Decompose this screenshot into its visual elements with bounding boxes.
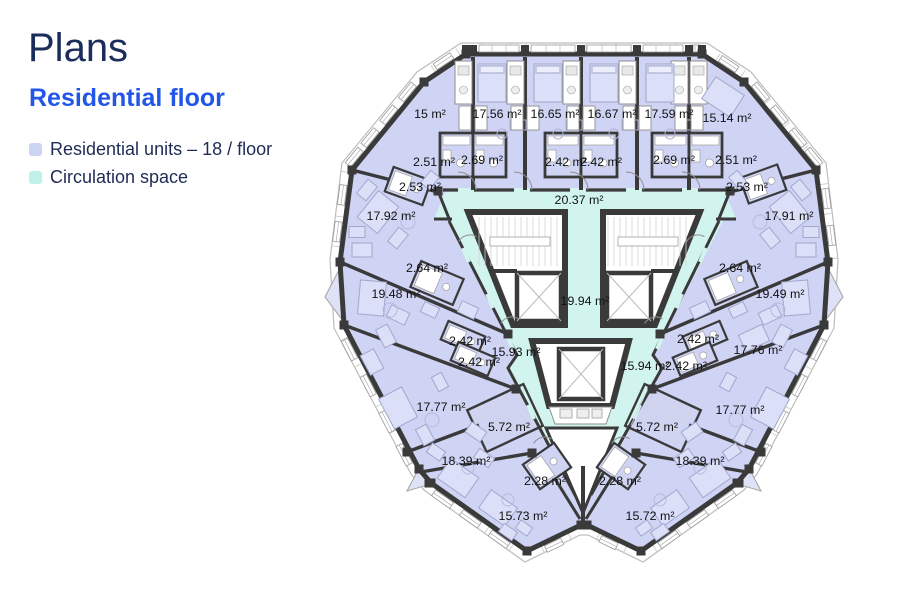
svg-text:2.51 m²: 2.51 m²: [413, 155, 455, 169]
svg-text:17.56 m²: 17.56 m²: [473, 107, 522, 121]
svg-text:19.48 m²: 19.48 m²: [372, 287, 421, 301]
svg-text:17.59 m²: 17.59 m²: [645, 107, 694, 121]
svg-text:17.91 m²: 17.91 m²: [765, 209, 814, 223]
svg-text:20.37 m²: 20.37 m²: [555, 193, 604, 207]
svg-text:18.39 m²: 18.39 m²: [676, 454, 725, 468]
svg-text:17.92 m²: 17.92 m²: [367, 209, 416, 223]
svg-text:2.42 m²: 2.42 m²: [449, 334, 491, 348]
svg-text:2.53 m²: 2.53 m²: [726, 180, 768, 194]
svg-text:15.14 m²: 15.14 m²: [703, 111, 752, 125]
svg-text:15 m²: 15 m²: [414, 107, 446, 121]
svg-text:2.69 m²: 2.69 m²: [461, 153, 503, 167]
svg-text:2.64 m²: 2.64 m²: [406, 261, 448, 275]
svg-text:2.53 m²: 2.53 m²: [399, 180, 441, 194]
svg-text:2.28 m²: 2.28 m²: [524, 474, 566, 488]
svg-text:17.76 m²: 17.76 m²: [734, 343, 783, 357]
svg-text:17.77 m²: 17.77 m²: [716, 403, 765, 417]
svg-text:15.72 m²: 15.72 m²: [626, 509, 675, 523]
svg-text:19.49 m²: 19.49 m²: [756, 287, 805, 301]
svg-text:2.42 m²: 2.42 m²: [458, 355, 500, 369]
svg-text:2.51 m²: 2.51 m²: [715, 153, 757, 167]
svg-text:17.77 m²: 17.77 m²: [417, 400, 466, 414]
svg-text:19.94 m²: 19.94 m²: [561, 294, 610, 308]
svg-text:2.69 m²: 2.69 m²: [653, 153, 695, 167]
svg-text:2.42 m²: 2.42 m²: [665, 359, 707, 373]
svg-text:15.73 m²: 15.73 m²: [499, 509, 548, 523]
svg-text:5.72 m²: 5.72 m²: [636, 420, 678, 434]
svg-text:2.42 m²: 2.42 m²: [580, 155, 622, 169]
svg-text:2.28 m²: 2.28 m²: [599, 474, 641, 488]
svg-text:2.42 m²: 2.42 m²: [677, 332, 719, 346]
svg-text:15.94 m²: 15.94 m²: [621, 359, 670, 373]
svg-text:2.64 m²: 2.64 m²: [719, 261, 761, 275]
svg-text:16.65 m²: 16.65 m²: [531, 107, 580, 121]
svg-text:5.72 m²: 5.72 m²: [488, 420, 530, 434]
svg-text:18.39 m²: 18.39 m²: [442, 454, 491, 468]
svg-text:16.67 m²: 16.67 m²: [588, 107, 637, 121]
